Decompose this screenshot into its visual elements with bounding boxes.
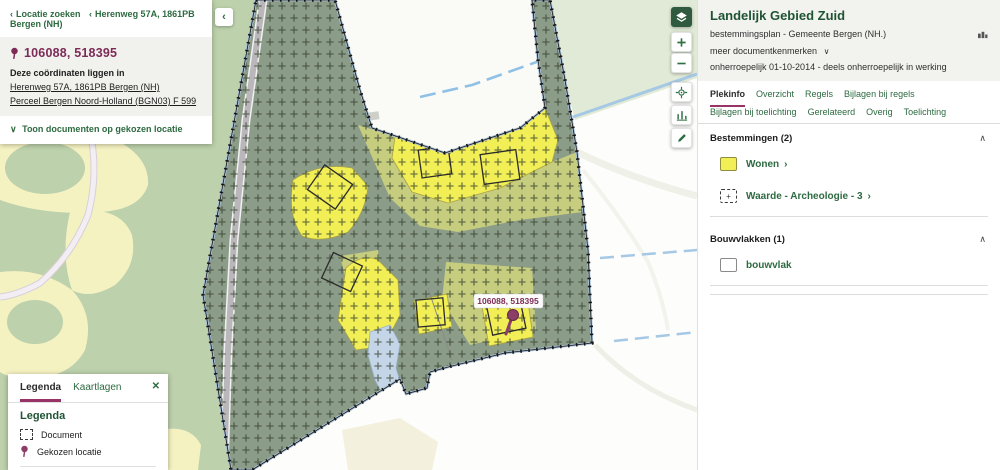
section-bestemmingen: Bestemmingen (2) ∧ Wonen› + Waarde - Arc…	[698, 124, 1000, 217]
bouwvlak-swatch	[720, 258, 737, 272]
document-outline-icon	[20, 429, 33, 440]
location-panel: ‹Locatie zoeken ‹Herenweg 57A, 1861PB Be…	[0, 0, 212, 144]
plan-type-icon	[977, 30, 988, 39]
pencil-icon	[676, 132, 688, 144]
svg-text:106088, 518395: 106088, 518395	[477, 296, 539, 306]
layers-icon	[675, 11, 688, 24]
section-heading: Bouwvlakken (1)	[710, 234, 785, 245]
chevron-left-icon: ‹	[222, 11, 226, 23]
coordinates-card: 106088, 518395 Deze coördinaten liggen i…	[0, 37, 212, 116]
coordinate-tooltip: 106088, 518395	[474, 294, 543, 308]
tab-plekinfo[interactable]: Plekinfo	[710, 89, 745, 107]
zone-row-archeologie[interactable]: + Waarde - Archeologie - 3›	[710, 180, 988, 212]
more-document-features-link[interactable]: meer documentkenmerken ∨	[710, 46, 988, 56]
layers-button[interactable]	[671, 7, 692, 27]
measure-button[interactable]	[671, 105, 692, 125]
chevron-down-icon: ∨	[824, 47, 830, 56]
legend-tabs: Legenda Kaartlagen	[8, 374, 168, 403]
legend-panel: Legenda Kaartlagen ✕ Legenda Document Ge…	[8, 374, 168, 470]
selected-coordinates: 106088, 518395	[24, 46, 117, 60]
zoom-out-button[interactable]	[671, 53, 692, 73]
tab-bijlagen-regels[interactable]: Bijlagen bij regels	[844, 89, 915, 107]
legend-heading: Legenda	[8, 403, 168, 424]
chevron-right-icon: ›	[784, 159, 787, 170]
zone-row-wonen[interactable]: Wonen›	[710, 148, 988, 180]
tab-regels[interactable]: Regels	[805, 89, 833, 107]
lies-in-heading: Deze coördinaten liggen in	[10, 68, 202, 78]
breadcrumb-search[interactable]: ‹Locatie zoeken	[10, 9, 81, 19]
panel-collapse-button[interactable]: ‹	[215, 8, 233, 26]
zoom-in-button[interactable]	[671, 32, 692, 52]
locate-icon	[675, 86, 688, 99]
measure-icon	[676, 109, 688, 121]
location-pin-icon	[10, 47, 19, 60]
plus-icon: +	[721, 190, 736, 202]
plan-detail-panel: Landelijk Gebied Zuid bestemmingsplan - …	[697, 0, 1000, 470]
chevron-left-icon: ‹	[89, 9, 92, 19]
show-documents-toggle[interactable]: ∨ Toon documenten op gekozen locatie	[0, 116, 212, 144]
zoom-in-icon	[676, 37, 687, 48]
plan-viewer-app: 106088, 518395	[0, 0, 1000, 470]
chevron-up-icon[interactable]: ∧	[979, 234, 986, 245]
tab-gerelateerd[interactable]: Gerelateerd	[808, 107, 856, 123]
legend-item-location: Gekozen locatie	[8, 440, 168, 458]
close-icon[interactable]: ✕	[152, 381, 160, 392]
address-link[interactable]: Herenweg 57A, 1861PB Bergen (NH)	[10, 82, 202, 92]
tab-legenda[interactable]: Legenda	[20, 382, 61, 402]
chevron-left-icon: ‹	[10, 9, 13, 19]
detail-tabs: Plekinfo Overzicht Regels Bijlagen bij r…	[698, 81, 1000, 124]
tab-bijlagen-toelichting[interactable]: Bijlagen bij toelichting	[710, 107, 797, 123]
location-pin-icon	[20, 445, 29, 458]
tab-overzicht[interactable]: Overzicht	[756, 89, 794, 107]
parcel-link[interactable]: Perceel Bergen Noord-Holland (BGN03) F 5…	[10, 96, 202, 106]
tab-kaartlagen[interactable]: Kaartlagen	[73, 382, 121, 402]
draw-button[interactable]	[671, 128, 692, 148]
zoom-out-icon	[676, 58, 687, 69]
chevron-right-icon: ›	[868, 191, 871, 202]
section-heading: Bestemmingen (2)	[710, 133, 792, 144]
plan-header: Landelijk Gebied Zuid bestemmingsplan - …	[698, 0, 1000, 81]
chevron-up-icon[interactable]: ∧	[979, 133, 986, 144]
locate-button[interactable]	[671, 82, 692, 102]
section-bouwvlakken: Bouwvlakken (1) ∧ bouwvlak	[698, 225, 1000, 295]
tab-toelichting[interactable]: Toelichting	[904, 107, 947, 123]
archeologie-swatch: +	[720, 189, 737, 203]
tab-overig[interactable]: Overig	[866, 107, 893, 123]
plan-status: onherroepelijk 01-10-2014 - deels onherr…	[710, 62, 988, 72]
breadcrumb: ‹Locatie zoeken ‹Herenweg 57A, 1861PB Be…	[0, 0, 212, 37]
wonen-swatch	[720, 157, 737, 171]
zone-row-bouwvlak[interactable]: bouwvlak	[710, 249, 988, 281]
chevron-down-icon: ∨	[10, 124, 17, 134]
plan-title: Landelijk Gebied Zuid	[710, 8, 988, 23]
plan-subtitle: bestemmingsplan - Gemeente Bergen (NH.)	[710, 29, 886, 39]
legend-item-document: Document	[8, 424, 168, 440]
